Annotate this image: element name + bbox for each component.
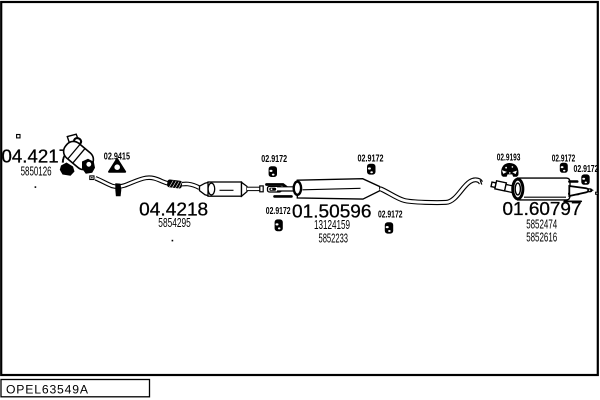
svg-text:02.9172: 02.9172 bbox=[261, 153, 287, 165]
svg-text:02.9172: 02.9172 bbox=[266, 205, 291, 217]
svg-text:5850126: 5850126 bbox=[21, 164, 52, 178]
svg-text:02.9172: 02.9172 bbox=[574, 163, 599, 175]
svg-text:5852474: 5852474 bbox=[526, 217, 557, 231]
svg-text:5852233: 5852233 bbox=[319, 231, 349, 245]
svg-text:5852616: 5852616 bbox=[526, 230, 557, 244]
svg-text:OPEL63549A: OPEL63549A bbox=[6, 382, 89, 396]
svg-text:13124159: 13124159 bbox=[314, 218, 350, 232]
svg-text:5854295: 5854295 bbox=[158, 216, 191, 230]
svg-text:01.60797: 01.60797 bbox=[503, 198, 582, 219]
svg-text:02.9172: 02.9172 bbox=[358, 152, 384, 164]
svg-text:02.9172: 02.9172 bbox=[552, 152, 576, 164]
svg-text:02.9193: 02.9193 bbox=[497, 151, 521, 163]
svg-text:02.9172: 02.9172 bbox=[378, 209, 403, 221]
